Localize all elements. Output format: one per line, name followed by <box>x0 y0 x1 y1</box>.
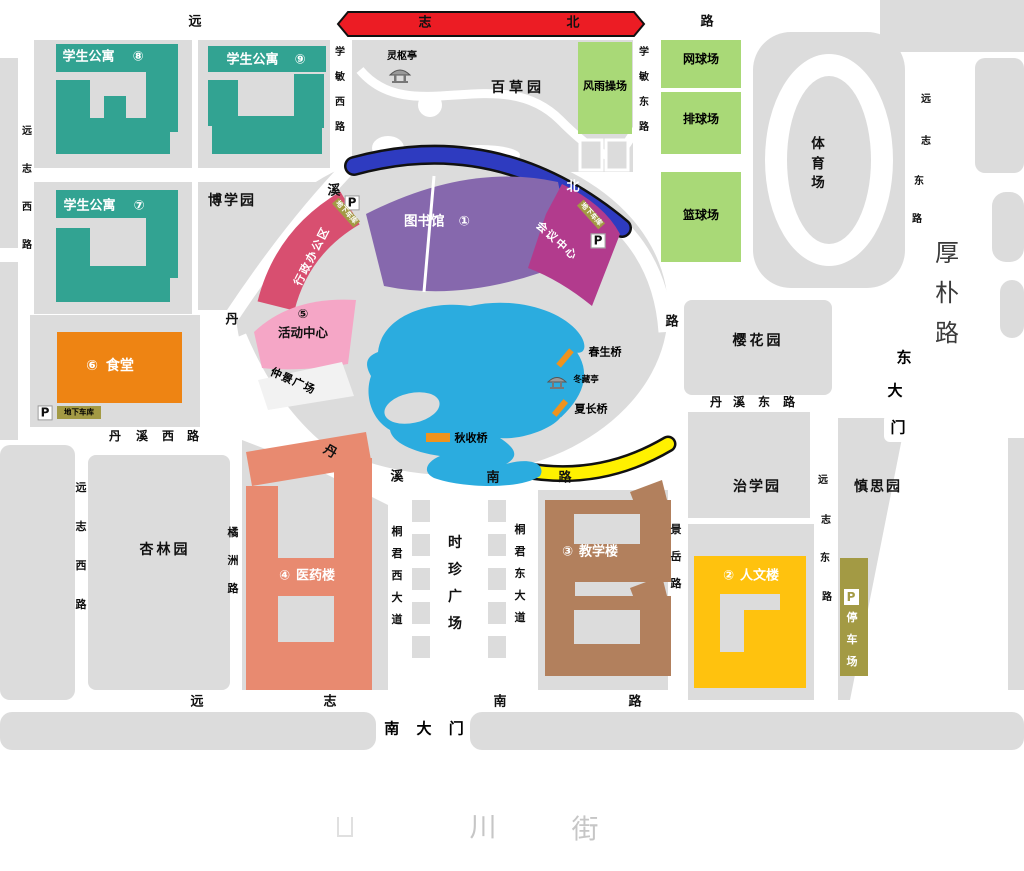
parcel-east-edge-4 <box>1008 438 1024 690</box>
spring-bridge-label: 春生桥 <box>589 347 622 358</box>
road-yuanzhi-east-upper-char: 东 <box>914 177 924 187</box>
road-danxi-east-char: 东 <box>758 396 770 408</box>
parcel-west-edge-2 <box>0 262 18 440</box>
zhixue-garden-label: 治学园 <box>733 480 781 494</box>
canteen-label: ⑥食堂 <box>86 359 134 373</box>
road-danxi-ring-char: 丹 <box>225 314 238 327</box>
autumn-bridge-label: 秋收桥 <box>455 433 488 444</box>
yinghua-garden-label: 樱花园 <box>733 334 784 348</box>
garden-path-circle <box>418 93 442 117</box>
road-yuanzhi-east-lower-char: 志 <box>821 516 831 526</box>
road-yuanzhi-east-lower-char: 东 <box>820 554 830 564</box>
faint-street-char: 川 <box>470 815 497 842</box>
road-yuanzhi-north-char: 远 <box>188 16 201 29</box>
medicine-building-shape <box>246 432 372 690</box>
parcel-east-edge-2 <box>992 192 1024 262</box>
parcel-east-edge-1 <box>975 58 1024 173</box>
road-tongjun-west: 桐君 西大 道 <box>392 526 403 625</box>
road-houpo: 厚朴 路 <box>935 241 959 345</box>
humanities-building-label: ②人文楼 <box>723 570 779 583</box>
road-danxi-ring-char-on-blue: 北 <box>566 181 579 194</box>
parcel-northeast-corner <box>880 0 1024 52</box>
road-danxi-west-char: 路 <box>187 430 199 442</box>
xinglin-garden-label: 杏林园 <box>140 543 191 557</box>
road-yuanzhi-east-lower-char: 路 <box>822 593 832 603</box>
road-yuanzhi-west-upper: 远志 西路 <box>22 127 32 251</box>
parking-marker: P <box>38 405 53 420</box>
lingshu-pavilion-label: 灵枢亭 <box>387 52 417 62</box>
parcel-east-edge-3 <box>1000 280 1024 338</box>
stadium-label: 体育 场 <box>811 138 825 191</box>
autumn-bridge-marker <box>426 433 450 442</box>
shensi-garden-label: 慎思园 <box>854 480 902 494</box>
dorm8-label: 学生公寓⑧ <box>62 51 143 64</box>
parking-marker: P <box>591 233 606 248</box>
summer-bridge-label: 夏长桥 <box>575 404 608 415</box>
underground-garage-label: 地下车库 <box>64 408 94 416</box>
faint-street-glyph <box>337 817 353 837</box>
basketball-court-label: 篮球场 <box>683 209 719 221</box>
parcel-south-strip-east <box>470 712 1024 750</box>
road-yuanzhi-west-lower: 远志 西路 <box>76 482 87 610</box>
activity-center-label: ⑤活动中心 <box>278 308 328 339</box>
volleyball-court-label: 排球场 <box>683 113 719 125</box>
road-yuanzhi-north-char: 路 <box>700 16 713 29</box>
teaching-building-shape <box>545 480 671 676</box>
parking-lot-label: 停车 场 <box>847 612 858 667</box>
road-juzhou: 橘洲 路 <box>228 527 239 594</box>
parcel-west-edge-1 <box>0 58 18 248</box>
dorm7-label: 学生公寓⑦ <box>63 200 144 213</box>
east-gate-char: 东 <box>896 351 911 366</box>
road-xuemin-west: 学敏 西路 <box>335 48 345 133</box>
small-court-1 <box>580 140 602 170</box>
road-danxi-ring-char: 溪 <box>327 185 340 198</box>
road-tongjun-east: 桐君 东大 道 <box>515 524 526 623</box>
road-yuanzhi-north-char: 志 <box>418 17 431 30</box>
library-label: 图书馆① <box>404 215 470 229</box>
road-danxi-south-char: 溪 <box>390 471 403 484</box>
medicine-building-label: ④医药楼 <box>279 570 335 583</box>
road-yuanzhi-east-upper-char: 远 <box>921 95 931 105</box>
parcel-zhixue-garden <box>688 412 810 518</box>
road-yuanzhi-east-upper-char: 志 <box>921 137 931 147</box>
road-yuanzhi-north-char: 北 <box>566 17 579 30</box>
road-xuemin-east: 学敏 东路 <box>639 48 649 133</box>
road-danxi-west-char: 溪 <box>136 430 148 442</box>
road-yuanzhi-south-char: 远 <box>190 696 203 709</box>
road-danxi-east-char: 路 <box>783 396 795 408</box>
tennis-court-label: 网球场 <box>683 53 719 65</box>
campus-map: 远 志 北 路 学敏 西路 学敏 东路 远志 西路 远志 西路 丹 溪 北 路 … <box>0 0 1024 871</box>
parcel-south-strip-west <box>0 712 376 750</box>
road-yuanzhi-south-char: 志 <box>323 696 336 709</box>
road-danxi-south-char-on-yellow: 路 <box>558 472 571 485</box>
shizhen-plaza-label: 时珍 广场 <box>448 536 462 631</box>
south-gate-label: 南 大 门 <box>384 722 469 737</box>
teaching-building-label: ③教学楼 <box>562 546 618 559</box>
dongcang-pavilion-label: 冬藏亭 <box>573 376 599 385</box>
road-danxi-east-char: 溪 <box>733 396 745 408</box>
parking-lot-p: P <box>847 591 856 603</box>
road-jingyue: 景岳 路 <box>671 524 682 589</box>
road-yuanzhi-east-lower-char: 远 <box>818 476 828 486</box>
road-danxi-south-char: 南 <box>486 472 499 485</box>
east-gate-char: 门 <box>890 421 905 436</box>
map-shapes-layer <box>0 0 1024 871</box>
road-danxi-west-char: 西 <box>162 430 174 442</box>
road-danxi-west-char: 丹 <box>109 430 121 442</box>
road-yuanzhi-south-char: 路 <box>628 696 641 709</box>
stadium-infield <box>787 76 871 244</box>
red-road-highlight <box>338 12 644 36</box>
parcel-xinglin-garden <box>88 455 230 690</box>
small-court-2 <box>606 140 628 170</box>
road-yuanzhi-south-char: 南 <box>493 696 506 709</box>
east-gate-char: 大 <box>887 384 902 399</box>
road-danxi-east-char: 丹 <box>710 396 722 408</box>
road-danxi-ring-char: 路 <box>665 316 678 329</box>
dorm9-label: 学生公寓⑨ <box>226 54 305 67</box>
road-yuanzhi-east-upper-char: 路 <box>912 215 922 225</box>
baicao-garden-label: 百草园 <box>491 81 545 95</box>
boxue-garden-label: 博学园 <box>208 194 256 208</box>
faint-street-char: 街 <box>572 817 599 844</box>
parcel-southwest-edge <box>0 445 75 700</box>
covered-playground-label: 风雨操场 <box>583 81 627 92</box>
